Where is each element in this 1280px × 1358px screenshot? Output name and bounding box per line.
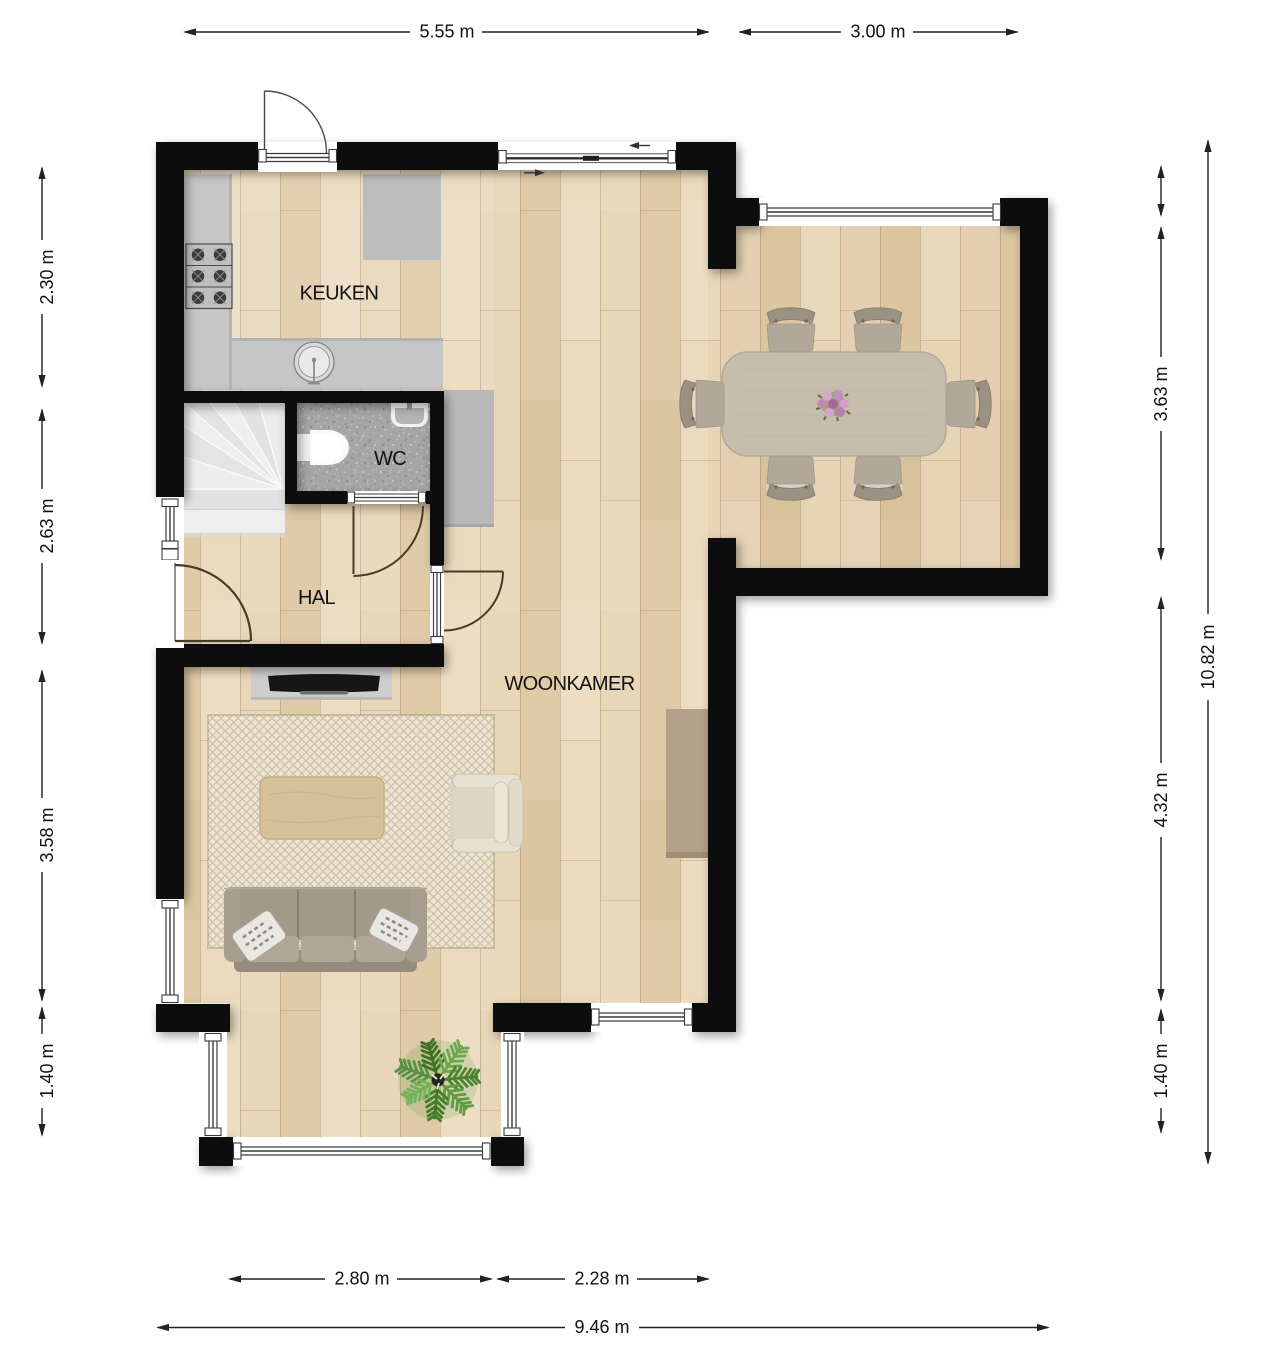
svg-text:9.46 m: 9.46 m (574, 1317, 629, 1337)
svg-text:WC: WC (374, 448, 406, 470)
svg-text:5.55 m: 5.55 m (419, 22, 474, 42)
svg-text:10.82 m: 10.82 m (1198, 624, 1218, 689)
svg-text:4.32 m: 4.32 m (1151, 772, 1171, 827)
svg-text:1.40 m: 1.40 m (37, 1043, 57, 1098)
svg-text:3.63 m: 3.63 m (1151, 366, 1171, 421)
svg-text:1.40 m: 1.40 m (1151, 1043, 1171, 1098)
svg-text:HAL: HAL (298, 587, 336, 609)
svg-text:2.80 m: 2.80 m (334, 1269, 389, 1289)
svg-text:KEUKEN: KEUKEN (300, 283, 379, 305)
svg-text:2.30 m: 2.30 m (37, 249, 57, 304)
svg-text:3.00 m: 3.00 m (850, 22, 905, 42)
svg-text:2.28 m: 2.28 m (574, 1269, 629, 1289)
svg-text:2.63 m: 2.63 m (37, 498, 57, 553)
svg-text:3.58 m: 3.58 m (37, 807, 57, 862)
svg-text:WOONKAMER: WOONKAMER (504, 673, 634, 695)
